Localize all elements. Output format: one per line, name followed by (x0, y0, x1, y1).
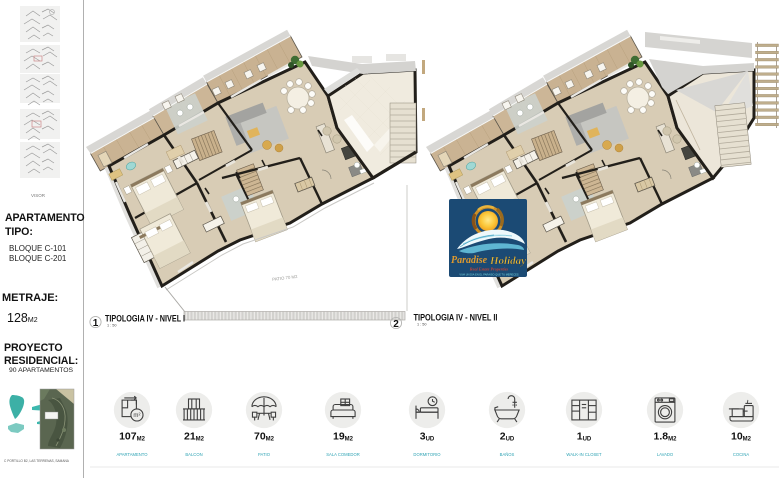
svg-text:1 : 50: 1 : 50 (417, 323, 427, 327)
svg-text:WALK-IN CLOSET: WALK-IN CLOSET (566, 452, 602, 457)
svg-text:Holiday: Holiday (489, 255, 526, 267)
svg-text:DORMITORIO: DORMITORIO (413, 452, 441, 457)
svg-text:m²: m² (133, 413, 140, 419)
svg-text:COCINA: COCINA (733, 452, 749, 457)
svg-text:19M2: 19M2 (333, 431, 354, 443)
svg-text:1UD: 1UD (577, 431, 592, 443)
svg-text:Paradise: Paradise (451, 255, 488, 266)
svg-text:PATIO: PATIO (258, 452, 271, 457)
svg-text:1.8M2: 1.8M2 (654, 431, 678, 443)
svg-text:107M2: 107M2 (119, 431, 146, 443)
svg-text:2UD: 2UD (500, 431, 515, 443)
svg-text:TIPOLOGIA IV - NIVEL II: TIPOLOGIA IV - NIVEL II (414, 313, 498, 323)
svg-text:TIPOLOGIA IV - NIVEL I: TIPOLOGIA IV - NIVEL I (105, 314, 185, 324)
svg-text:PATIO 70 M2: PATIO 70 M2 (272, 274, 298, 282)
svg-text:1 : 50: 1 : 50 (107, 324, 117, 328)
svg-text:2: 2 (393, 319, 399, 330)
svg-text:SALA COMEDOR: SALA COMEDOR (326, 452, 360, 457)
svg-text:1: 1 (93, 318, 99, 329)
svg-text:3UD: 3UD (420, 431, 435, 443)
svg-text:10M2: 10M2 (731, 431, 752, 443)
svg-text:VIVA UN DIA EN EL PARAISO QUE: VIVA UN DIA EN EL PARAISO QUE TU MERECES (459, 272, 518, 276)
svg-text:BALCON: BALCON (185, 452, 202, 457)
svg-text:BAÑOS: BAÑOS (500, 452, 515, 457)
svg-text:Real Estate Properties: Real Estate Properties (470, 267, 509, 272)
svg-text:LAVADO: LAVADO (657, 452, 674, 457)
svg-text:70M2: 70M2 (254, 431, 275, 443)
svg-text:21M2: 21M2 (184, 431, 205, 443)
svg-text:APARTAMENTO: APARTAMENTO (116, 452, 148, 457)
